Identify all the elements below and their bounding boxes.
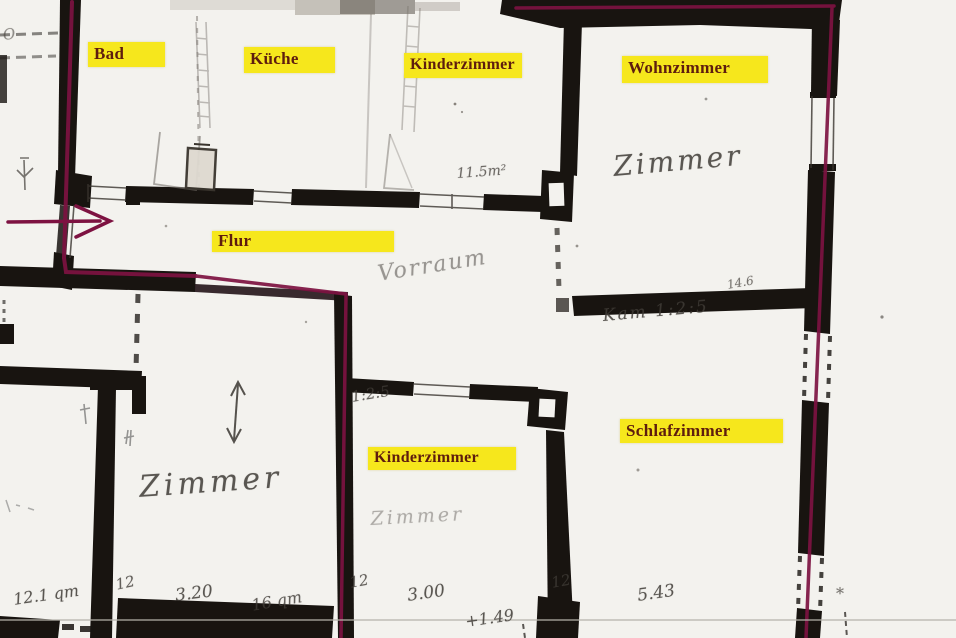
room-label-kinderzimmer-top: Kinderzimmer: [404, 53, 522, 78]
room-label-schlafzimmer: Schlafzimmer: [620, 419, 783, 443]
floorplan-walls-drawing: [0, 0, 956, 638]
stove-icon: [186, 144, 216, 190]
room-label-kinderzimmer-bottom: Kinderzimmer: [368, 447, 516, 470]
annotation-mark-o: O: [2, 25, 16, 44]
annotation-dim-12-b: 12: [348, 571, 370, 592]
annotation-mark-star: *: [836, 584, 844, 603]
room-label-kueche: Küche: [244, 47, 335, 73]
room-label-bad: Bad: [88, 42, 165, 67]
room-label-flur: Flur: [212, 231, 394, 252]
annotation-dim-12-c: 12: [550, 571, 572, 592]
room-label-wohnzimmer: Wohnzimmer: [622, 56, 768, 83]
floorplan-scan: Bad Küche Kinderzimmer Wohnzimmer Flur K…: [0, 0, 956, 638]
